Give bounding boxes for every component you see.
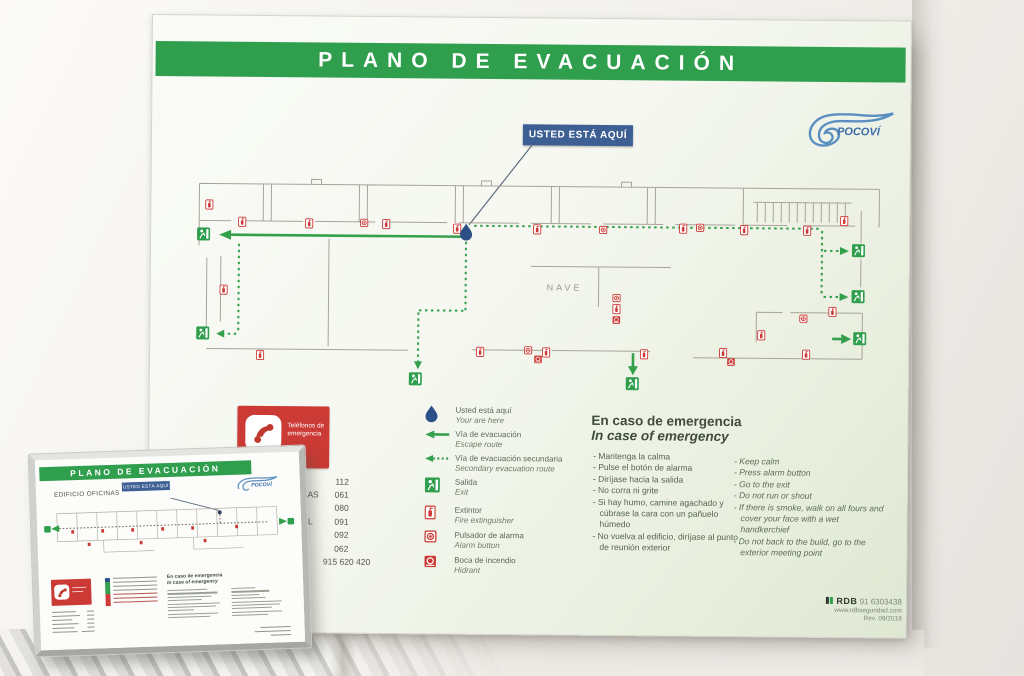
small-pocovi-logo: POCOVÍ (231, 472, 286, 496)
escape-route-arrow-icon (425, 429, 451, 439)
instructions-english: Keep calm Press alarm button Go to the e… (733, 456, 884, 560)
legend-item-alarm-button: Pulsador de alarma Alarm button (424, 530, 524, 550)
small-emergency-phones-box (51, 579, 92, 606)
alarm-button-icon (424, 530, 450, 542)
legend-item-exit: Salida Exit (425, 477, 477, 496)
small-evacuation-sign: PLANO DE EVACUACIÓN POCOVÍ EDIFICIO OFIC… (29, 445, 312, 656)
you-are-here-drop-icon (425, 405, 451, 422)
small-maker-info (247, 626, 291, 639)
maker-info: RDB 91 6303438 www.rdbseguridad.com Rev.… (788, 597, 902, 624)
you-are-here-marker (460, 224, 472, 241)
legend-item-hydrant: Boca de incendio Hidrant (424, 555, 516, 575)
you-are-here-pointer-line (469, 145, 532, 226)
instructions-spanish: Mantenga la calma Pulse el botón de alar… (592, 451, 743, 555)
occluded-label-fragment: L (308, 516, 313, 526)
small-instructions: En caso de emergencia In case of emergen… (167, 570, 287, 586)
small-phone-icon (54, 584, 69, 599)
revision: Rev. 09/2018 (788, 615, 902, 624)
legend-item-you-are-here: Usted está aquí Your are here (425, 405, 511, 425)
exit-sign-icon (425, 477, 451, 492)
instructions-heading: En caso de emergencia In case of emergen… (591, 413, 741, 444)
fire-extinguisher-icon (425, 505, 451, 519)
photo-of-evacuation-plan: { "board": { "title": "PLANO DE EVACUACI… (0, 0, 1024, 676)
secondary-route-arrow-icon (425, 453, 451, 463)
small-sign-subtitle: EDIFICIO OFICINAS (54, 490, 120, 499)
small-sign-title: PLANO DE EVACUACIÓN (39, 460, 251, 481)
small-legend (105, 576, 158, 606)
svg-text:POCOVÍ: POCOVÍ (251, 481, 273, 489)
area-label: NAVE (547, 282, 583, 292)
fire-hydrant-icon (424, 555, 450, 567)
wall-shadow (912, 0, 946, 648)
legend-item-secondary-route: Vía de evacuación secundaria Secondary e… (425, 453, 562, 473)
escape-route-primary (218, 230, 852, 378)
exit-signs (196, 227, 867, 392)
small-numbers-list (52, 611, 95, 636)
building-walls (198, 178, 880, 359)
small-you-are-here-label: USTED ESTÁ AQUÍ (122, 481, 170, 492)
legend-item-extinguisher: Extintor Fire extinguisher (425, 505, 514, 525)
legend-item-escape-route: Vía de evacuación Escape route (425, 429, 521, 449)
small-floor-plan (42, 494, 296, 576)
